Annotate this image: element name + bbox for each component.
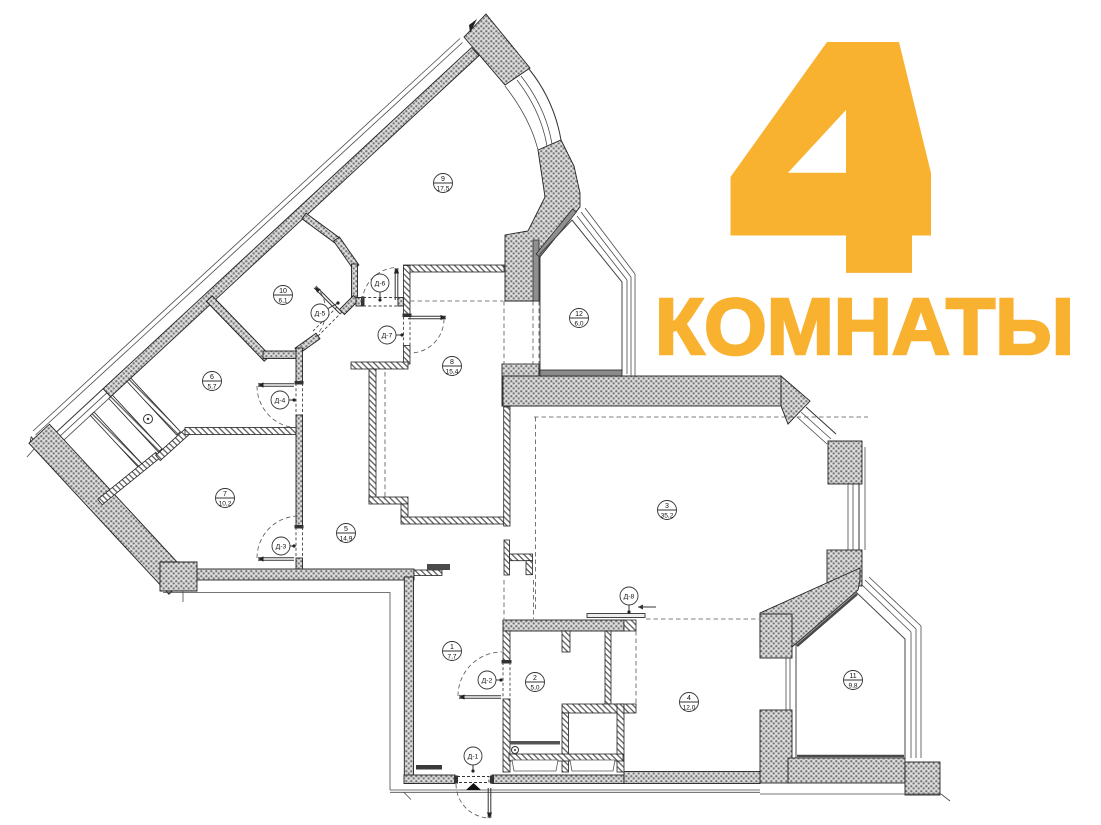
- svg-text:10,2: 10,2: [219, 501, 232, 508]
- svg-text:6: 6: [210, 374, 214, 381]
- svg-text:3: 3: [665, 503, 669, 510]
- svg-text:7: 7: [223, 491, 227, 498]
- svg-text:Д-3: Д-3: [276, 543, 287, 550]
- svg-text:1: 1: [450, 644, 454, 651]
- svg-text:8: 8: [450, 359, 454, 366]
- svg-text:9: 9: [441, 176, 445, 183]
- svg-text:4: 4: [687, 695, 691, 702]
- svg-text:15,4: 15,4: [446, 369, 459, 376]
- svg-text:11: 11: [849, 673, 856, 680]
- svg-text:6,0: 6,0: [574, 321, 583, 328]
- svg-text:35,2: 35,2: [661, 513, 674, 520]
- svg-text:6,1: 6,1: [278, 298, 287, 305]
- svg-text:Д-1: Д-1: [468, 753, 479, 760]
- svg-text:9,8: 9,8: [848, 683, 857, 690]
- svg-text:Д-5: Д-5: [315, 310, 326, 317]
- svg-text:КОМНАТЫ: КОМНАТЫ: [655, 282, 1074, 371]
- svg-text:Д-2: Д-2: [482, 677, 493, 684]
- svg-text:12: 12: [575, 311, 583, 318]
- svg-text:17,5: 17,5: [437, 186, 450, 193]
- svg-text:Д-7: Д-7: [382, 332, 393, 339]
- svg-text:Д-8: Д-8: [624, 593, 635, 600]
- svg-text:5,7: 5,7: [207, 384, 216, 391]
- svg-text:7,7: 7,7: [447, 654, 456, 661]
- svg-text:14,9: 14,9: [340, 536, 353, 543]
- svg-text:2: 2: [533, 675, 537, 682]
- svg-text:Д-6: Д-6: [375, 280, 386, 287]
- svg-text:Д-4: Д-4: [275, 397, 286, 404]
- svg-text:10: 10: [279, 288, 287, 295]
- svg-text:12,0: 12,0: [683, 705, 696, 712]
- svg-text:5,0: 5,0: [530, 685, 539, 692]
- svg-text:5: 5: [344, 526, 348, 533]
